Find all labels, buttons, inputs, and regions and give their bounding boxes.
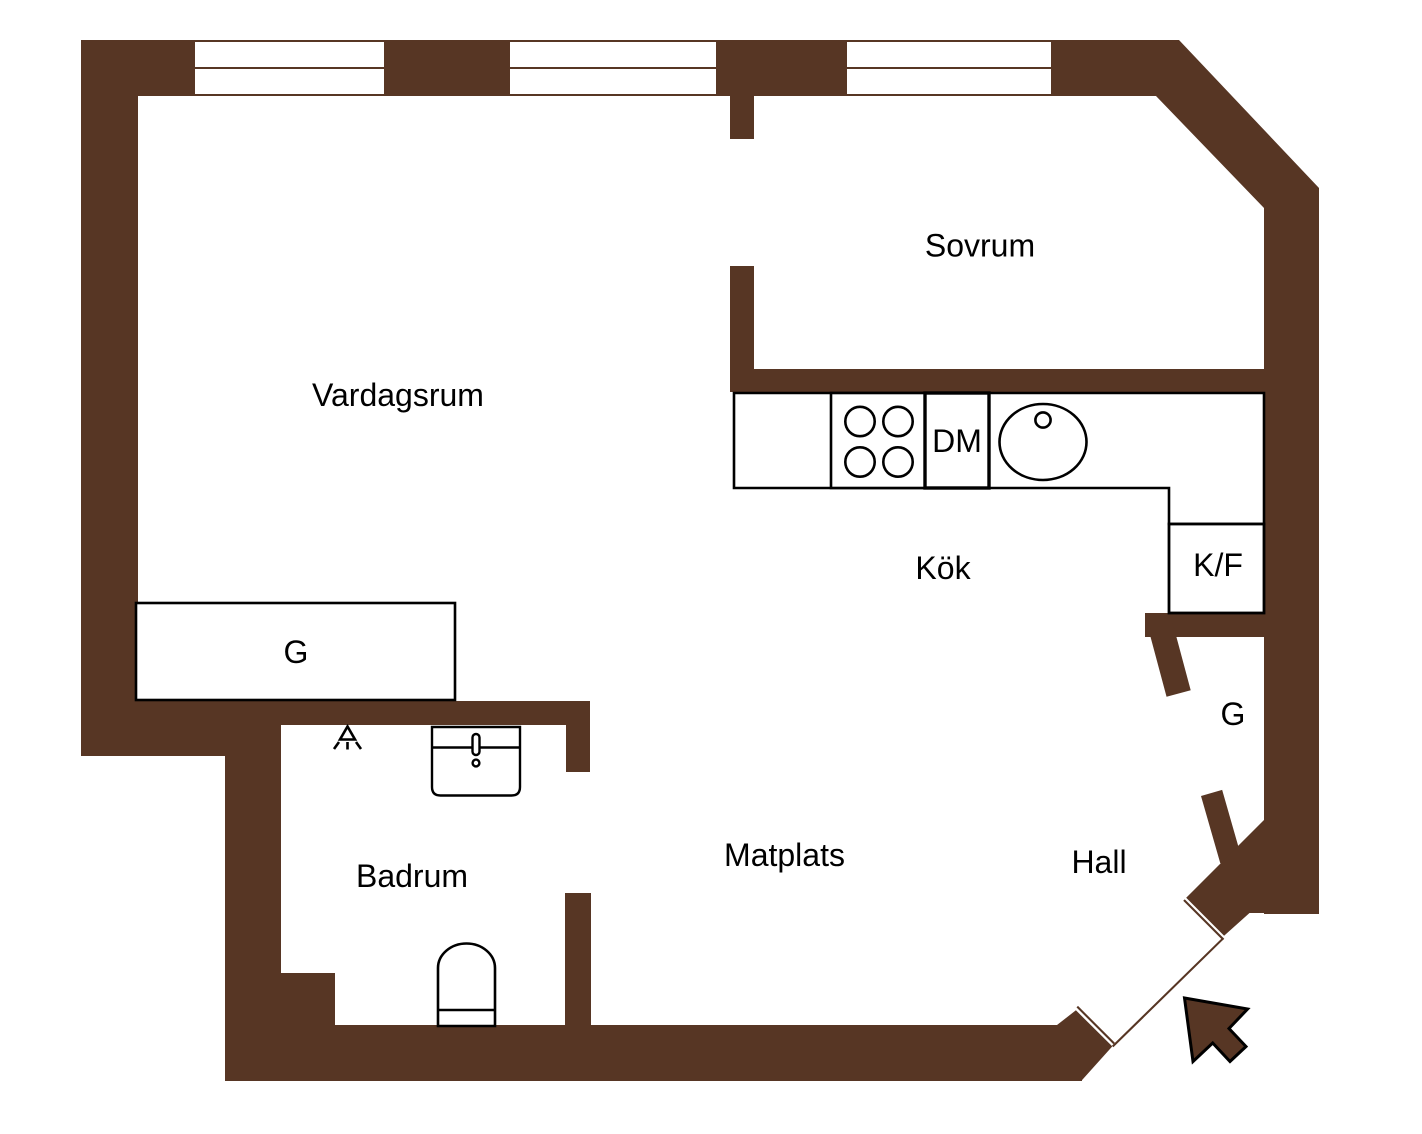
svg-text:Sovrum: Sovrum	[925, 228, 1035, 264]
svg-text:G: G	[1221, 696, 1246, 732]
svg-text:Matplats: Matplats	[724, 837, 845, 873]
svg-text:Vardagsrum: Vardagsrum	[312, 377, 484, 413]
svg-text:DM: DM	[932, 423, 982, 459]
svg-text:Kök: Kök	[915, 550, 971, 586]
svg-text:Hall: Hall	[1071, 844, 1126, 880]
svg-text:Badrum: Badrum	[356, 858, 468, 894]
svg-text:K/F: K/F	[1193, 547, 1243, 583]
svg-text:G: G	[284, 634, 309, 670]
